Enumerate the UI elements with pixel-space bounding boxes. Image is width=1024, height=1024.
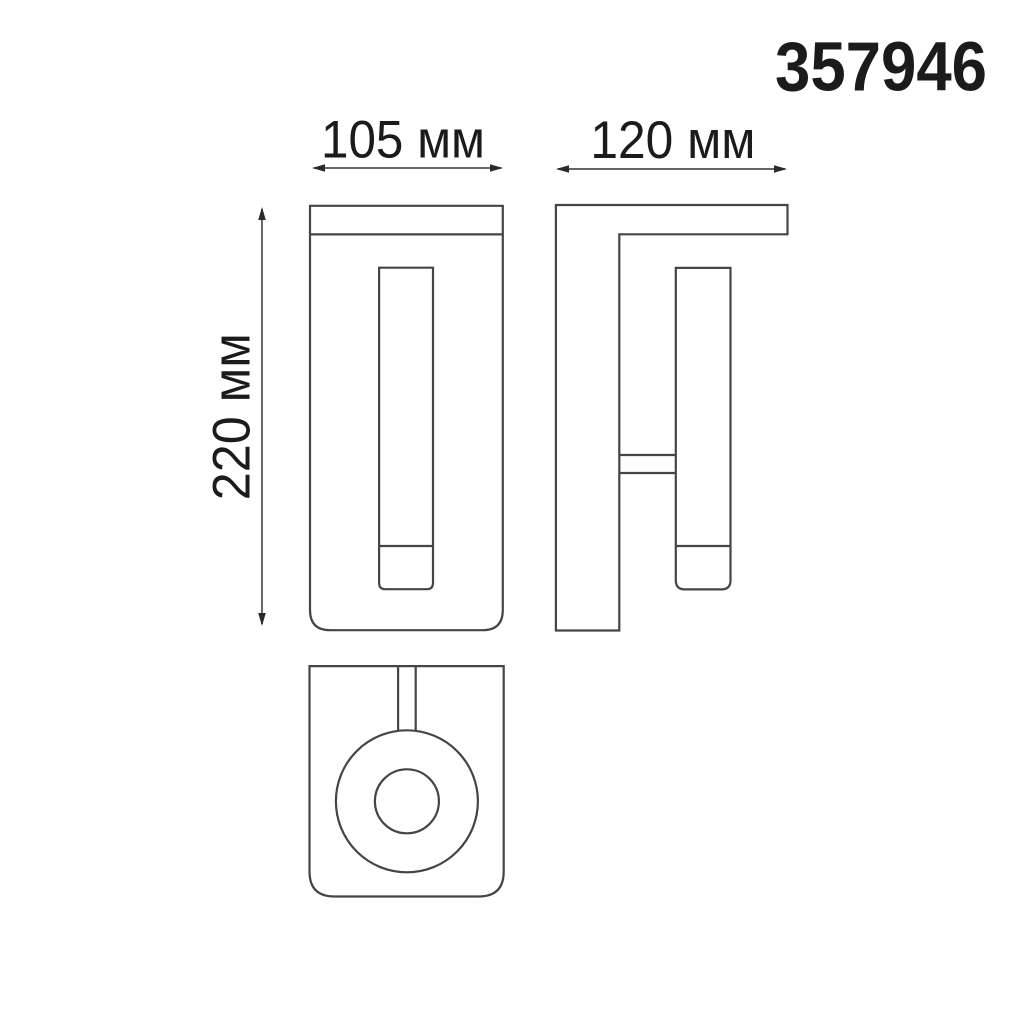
svg-text:105 мм: 105 мм xyxy=(321,111,485,170)
svg-text:120 мм: 120 мм xyxy=(590,111,755,170)
svg-text:357946: 357946 xyxy=(775,28,987,106)
svg-text:220 мм: 220 мм xyxy=(203,333,262,500)
